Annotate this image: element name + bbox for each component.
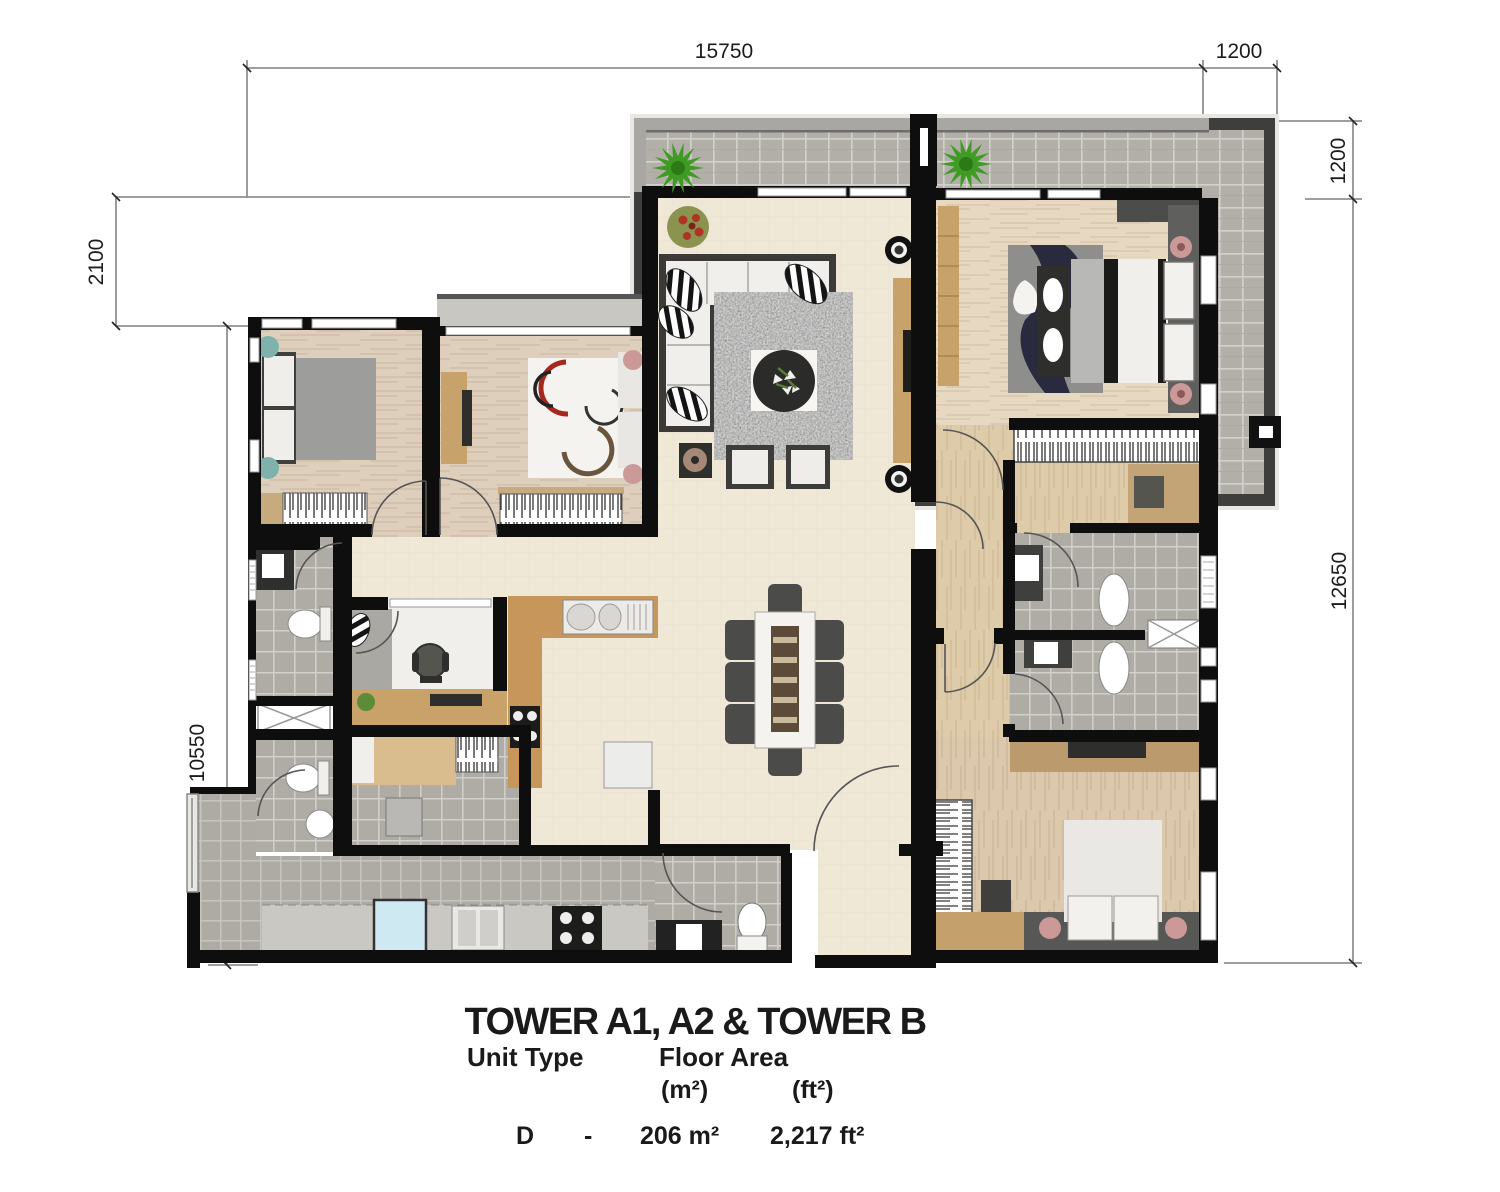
- svg-text:D: D: [516, 1122, 534, 1150]
- svg-text:1200: 1200: [1216, 40, 1263, 63]
- svg-text:2100: 2100: [85, 239, 108, 286]
- svg-text:206 m²: 206 m²: [640, 1122, 719, 1150]
- svg-text:15750: 15750: [695, 40, 753, 63]
- svg-text:Floor Area: Floor Area: [659, 1042, 789, 1072]
- svg-text:1200: 1200: [1327, 138, 1350, 185]
- svg-text:10550: 10550: [186, 724, 209, 782]
- svg-text:(ft²): (ft²): [792, 1076, 834, 1104]
- svg-text:Unit Type: Unit Type: [467, 1042, 584, 1072]
- svg-text:-: -: [584, 1122, 592, 1150]
- svg-text:TOWER A1, A2 & TOWER B: TOWER A1, A2 & TOWER B: [464, 1001, 925, 1043]
- svg-text:(m²): (m²): [661, 1076, 708, 1104]
- svg-text:2,217 ft²: 2,217 ft²: [770, 1122, 864, 1150]
- svg-text:12650: 12650: [1328, 552, 1351, 610]
